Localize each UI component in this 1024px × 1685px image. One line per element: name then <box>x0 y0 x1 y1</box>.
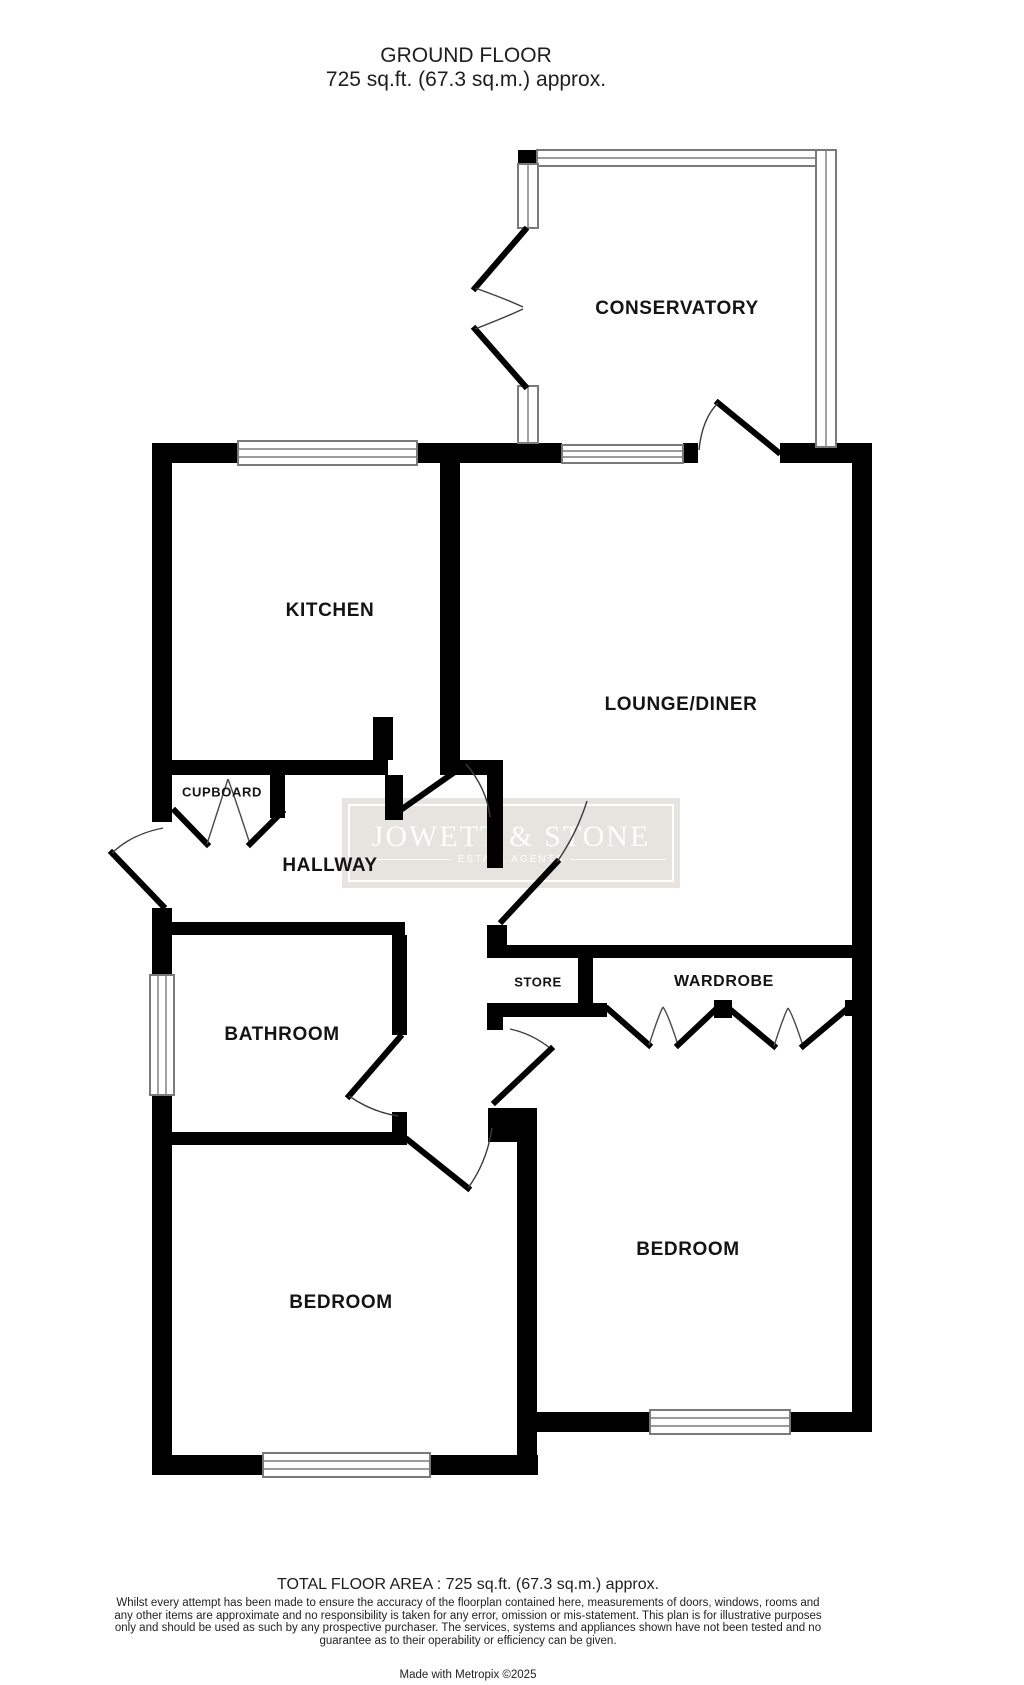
front-door <box>112 828 163 906</box>
room-label-conservatory: CONSERVATORY <box>595 298 758 320</box>
lounge-door <box>502 801 587 921</box>
window-bedroom-right <box>650 1410 790 1434</box>
bedroom-right-door <box>495 1029 551 1102</box>
room-label-store: STORE <box>514 975 562 990</box>
conservatory-lounge-door <box>699 403 778 452</box>
room-label-bathroom: BATHROOM <box>224 1024 339 1046</box>
conservatory-french-doors <box>475 230 525 386</box>
room-label-lounge-diner: LOUNGE/DINER <box>605 694 758 716</box>
glazing-conservatory-left-lower <box>518 386 538 443</box>
glazing-conservatory-top <box>537 150 818 166</box>
window-kitchen <box>238 441 417 465</box>
metropix-credit: Made with Metropix ©2025 <box>108 1669 828 1681</box>
bedroom-left-door <box>408 1128 492 1188</box>
room-label-cupboard: CUPBOARD <box>182 785 262 800</box>
window-bathroom <box>150 975 174 1095</box>
disclaimer-text: Whilst every attempt has been made to en… <box>108 1597 828 1647</box>
walls-layer <box>152 150 872 1475</box>
room-label-kitchen: KITCHEN <box>286 600 375 622</box>
room-label-bedroom-right: BEDROOM <box>636 1239 739 1261</box>
room-label-hallway: HALLWAY <box>282 855 377 877</box>
room-label-bedroom-left: BEDROOM <box>289 1292 392 1314</box>
window-lounge-conservatory <box>562 445 683 463</box>
window-bedroom-left <box>263 1453 430 1477</box>
room-label-wardrobe: WARDROBE <box>674 973 774 991</box>
total-floor-area: TOTAL FLOOR AREA : 725 sq.ft. (67.3 sq.m… <box>108 1576 828 1594</box>
glazing-conservatory-left-upper <box>518 164 538 228</box>
glazing-conservatory-right <box>816 150 836 447</box>
bathroom-door <box>349 1037 400 1116</box>
floorplan-page: GROUND FLOOR 725 sq.ft. (67.3 sq.m.) app… <box>0 0 1024 1685</box>
floorplan-drawing <box>0 0 1024 1685</box>
